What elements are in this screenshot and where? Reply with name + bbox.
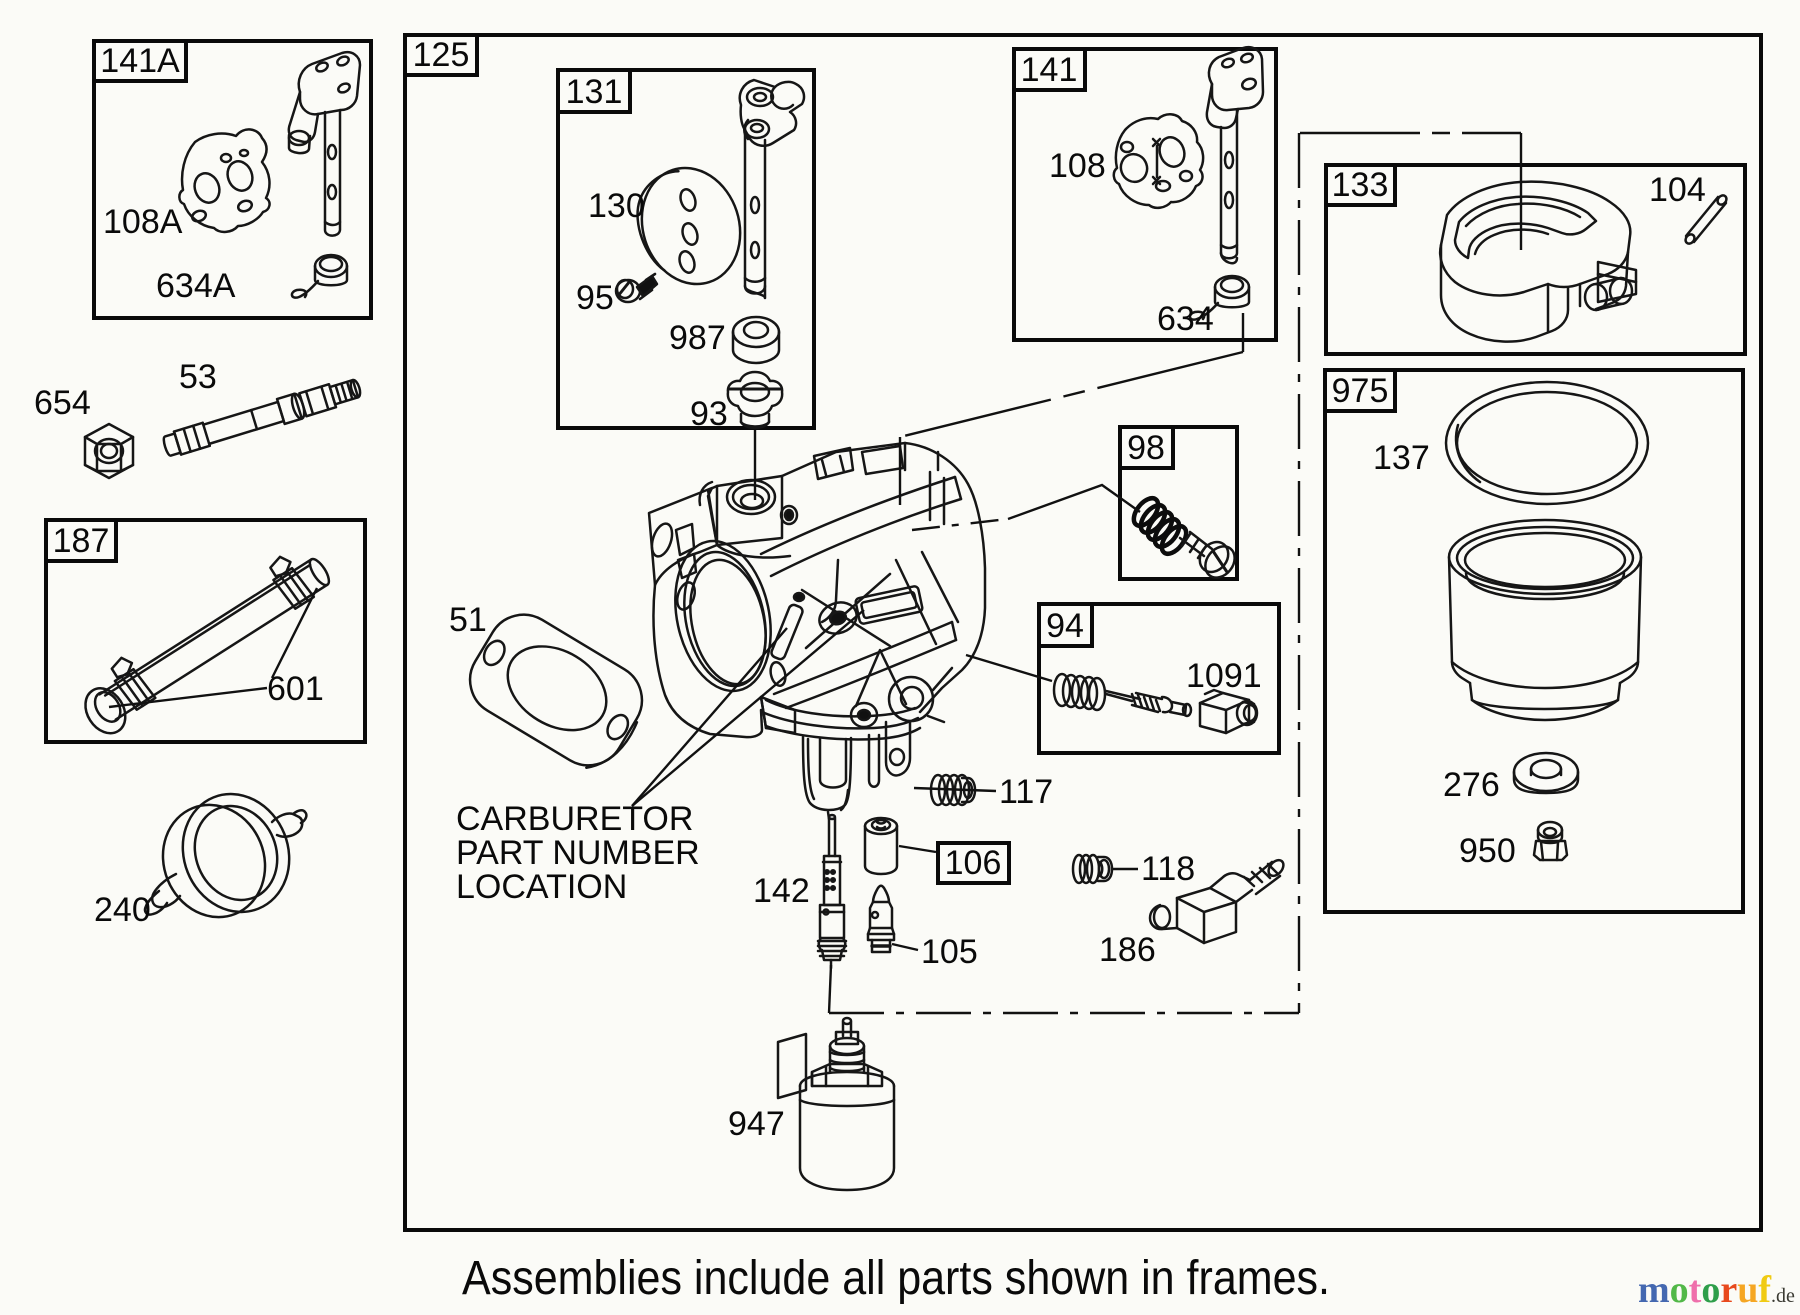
svg-text:634A: 634A <box>156 267 236 305</box>
svg-text:975: 975 <box>1332 372 1389 410</box>
svg-text:117: 117 <box>999 773 1053 811</box>
svg-text:125: 125 <box>413 36 470 74</box>
svg-text:51: 51 <box>449 601 487 639</box>
svg-text:1091: 1091 <box>1186 657 1262 695</box>
svg-text:98: 98 <box>1127 429 1165 467</box>
svg-text:PART NUMBER: PART NUMBER <box>456 834 700 872</box>
svg-text:276: 276 <box>1443 766 1500 804</box>
svg-text:634: 634 <box>1157 300 1214 338</box>
svg-text:93: 93 <box>690 395 728 433</box>
svg-text:94: 94 <box>1046 607 1084 645</box>
svg-text:133: 133 <box>1332 166 1389 204</box>
svg-text:108A: 108A <box>103 203 183 241</box>
svg-text:106: 106 <box>945 844 1002 882</box>
svg-text:LOCATION: LOCATION <box>456 868 627 906</box>
svg-text:95: 95 <box>576 279 614 317</box>
svg-text:654: 654 <box>34 384 91 422</box>
svg-text:947: 947 <box>728 1105 785 1143</box>
svg-text:141: 141 <box>1021 51 1078 89</box>
svg-text:131: 131 <box>566 73 623 111</box>
svg-text:186: 186 <box>1099 931 1156 969</box>
svg-text:141A: 141A <box>100 42 180 80</box>
svg-text:104: 104 <box>1649 171 1706 209</box>
svg-text:118: 118 <box>1141 850 1195 888</box>
svg-text:105: 105 <box>921 933 978 971</box>
svg-text:Assemblies include all parts s: Assemblies include all parts shown in fr… <box>462 1252 1330 1305</box>
svg-text:CARBURETOR: CARBURETOR <box>456 800 693 838</box>
svg-text:137: 137 <box>1373 439 1430 477</box>
svg-text:108: 108 <box>1049 147 1106 185</box>
svg-text:130: 130 <box>588 187 645 225</box>
svg-text:950: 950 <box>1459 832 1516 870</box>
svg-text:601: 601 <box>267 670 324 708</box>
svg-text:987: 987 <box>669 319 726 357</box>
svg-text:240: 240 <box>94 891 151 929</box>
svg-text:187: 187 <box>53 522 110 560</box>
svg-text:142: 142 <box>753 872 810 910</box>
svg-text:53: 53 <box>179 358 217 396</box>
